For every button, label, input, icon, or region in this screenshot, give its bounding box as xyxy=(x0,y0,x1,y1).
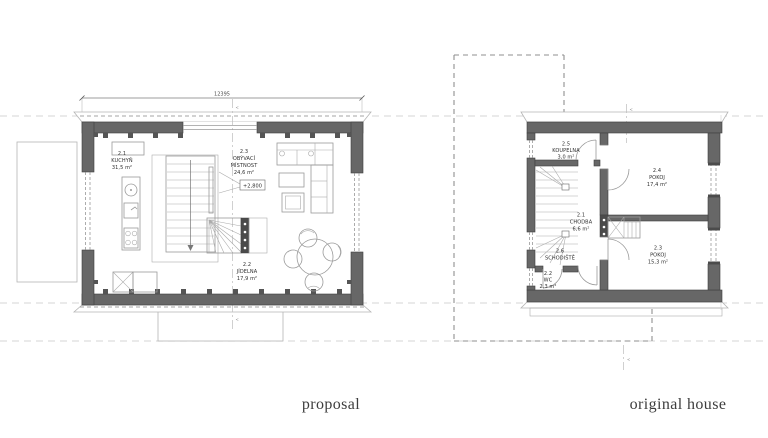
section-mark: < xyxy=(236,105,239,110)
section-mark: < xyxy=(236,317,239,322)
svg-text:2.3: 2.3 xyxy=(240,149,248,155)
svg-text:2.5: 2.5 xyxy=(562,142,570,148)
svg-text:2.3: 2.3 xyxy=(654,246,662,252)
drawing-sheet: < < 12395 xyxy=(0,0,768,438)
svg-text:17,4 m²: 17,4 m² xyxy=(647,182,667,188)
caption-proposal: proposal xyxy=(302,396,360,413)
svg-text:2,3 m²: 2,3 m² xyxy=(539,284,556,290)
svg-text:KUCHYŇ: KUCHYŇ xyxy=(111,157,133,164)
svg-text:SCHODIŠTĚ: SCHODIŠTĚ xyxy=(545,254,575,262)
svg-text:2.4: 2.4 xyxy=(653,168,661,174)
svg-text:JÍDELNA: JÍDELNA xyxy=(236,268,258,275)
dimension-value: 12395 xyxy=(214,92,230,98)
svg-text:24,6 m²: 24,6 m² xyxy=(234,170,254,176)
svg-text:3,0 m²: 3,0 m² xyxy=(557,155,574,161)
dimension-line: 12395 xyxy=(80,92,365,113)
svg-text:2.2: 2.2 xyxy=(243,262,251,268)
section-mark: < xyxy=(630,107,633,112)
captions: proposal original house xyxy=(302,396,727,413)
svg-text:KOUPELNA: KOUPELNA xyxy=(552,148,580,154)
svg-text:2.1: 2.1 xyxy=(118,151,126,157)
svg-text:2.6: 2.6 xyxy=(556,249,564,255)
svg-text:POKOJ: POKOJ xyxy=(650,253,666,259)
svg-text:POKOJ: POKOJ xyxy=(649,175,665,181)
caption-original-house: original house xyxy=(630,396,727,413)
svg-text:2.1: 2.1 xyxy=(577,213,585,219)
svg-text:WC: WC xyxy=(544,278,553,284)
svg-text:15,3 m²: 15,3 m² xyxy=(648,260,668,266)
base-outline xyxy=(530,308,722,316)
proposal-floor-plan: < < 12395 xyxy=(17,92,371,342)
floorplan-canvas: < < 12395 xyxy=(0,0,768,438)
svg-text:2.2: 2.2 xyxy=(544,271,552,277)
svg-text:OBÝVACÍ: OBÝVACÍ xyxy=(233,155,256,162)
section-mark: < xyxy=(627,357,630,362)
annex-outline xyxy=(17,142,77,282)
svg-text:MÍSTNOST: MÍSTNOST xyxy=(231,162,259,169)
svg-text:6,6 m²: 6,6 m² xyxy=(572,227,589,233)
level-value: +2,800 xyxy=(243,183,262,189)
svg-text:31,5 m²: 31,5 m² xyxy=(112,165,132,171)
svg-text:CHODBA: CHODBA xyxy=(570,220,593,226)
svg-text:17,9 m²: 17,9 m² xyxy=(237,276,257,282)
terrace-outline xyxy=(158,308,283,341)
original-floor-plan: < < xyxy=(454,55,728,370)
